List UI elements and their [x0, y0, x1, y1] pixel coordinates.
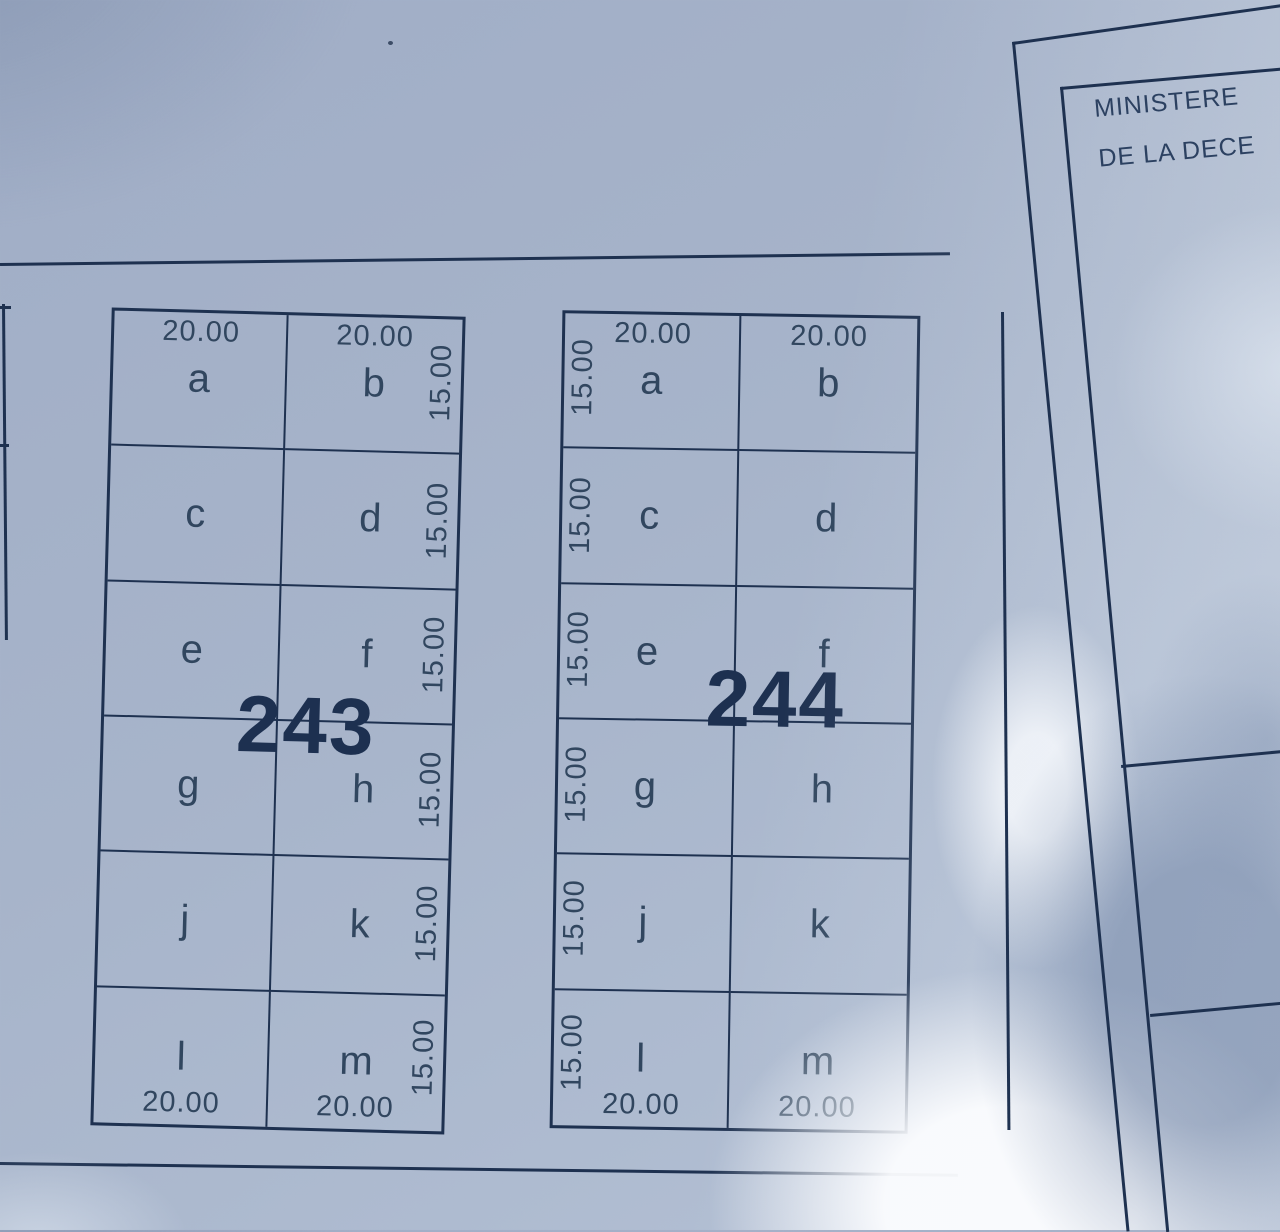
- parcel-letter: b: [817, 361, 840, 406]
- dimension-text: 15.00: [424, 343, 459, 421]
- dimension-text: 15.00: [560, 744, 594, 822]
- dimension-label-side: 15.00: [421, 315, 462, 450]
- parcel-letter: m: [339, 1039, 373, 1085]
- parcel-cell: d: [737, 451, 915, 589]
- ministry-frame-section-rule: [1150, 1001, 1280, 1016]
- parcel-letter: a: [640, 359, 663, 404]
- parcel-letter: k: [349, 902, 370, 948]
- parcel-letter: c: [639, 494, 660, 539]
- dimension-text: 15.00: [558, 878, 592, 956]
- parcel-letter: g: [177, 763, 200, 809]
- dimension-text: 15.00: [564, 476, 598, 554]
- parcel-letter: e: [180, 627, 203, 673]
- dimension-text: 15.00: [417, 615, 452, 693]
- parcel-cell: k: [731, 857, 909, 995]
- block-number: 243: [103, 680, 481, 770]
- parcel-letter: d: [359, 497, 382, 543]
- parcel-letter: d: [815, 497, 838, 542]
- parcel-letter: c: [185, 492, 206, 538]
- parcel-letter: g: [633, 765, 656, 810]
- bottom-rule-line: [0, 1162, 958, 1176]
- adjacent-block-edge-line: [2, 304, 7, 640]
- dimension-label-bottom: 20.00: [94, 1084, 269, 1122]
- dimension-label-top: 20.00: [114, 314, 289, 352]
- dimension-label-top: 20.00: [741, 319, 917, 355]
- dimension-label-side: 15.00: [561, 447, 601, 582]
- parcel-letter: k: [809, 903, 830, 948]
- dimension-text: 15.00: [566, 338, 600, 416]
- parcel-letter: h: [810, 767, 833, 812]
- dimension-label-side: 15.00: [407, 856, 448, 991]
- dimension-label-side: 15.00: [555, 850, 595, 985]
- top-rule-line: [0, 252, 950, 265]
- plan-right-margin-line: [1001, 312, 1010, 1130]
- parcel-letter: l: [176, 1034, 186, 1079]
- dimension-text: 15.00: [421, 481, 456, 559]
- ministry-frame-section-rule: [1121, 749, 1280, 767]
- parcel-letter: h: [352, 767, 375, 813]
- block-number: 244: [559, 656, 952, 742]
- parcel-block-243: a b c d e f g h j k l m 20.00 20.00 20.0…: [90, 308, 465, 1135]
- dimension-text: 15.00: [407, 1018, 442, 1096]
- dimension-text: 15.00: [556, 1012, 590, 1090]
- adjacent-block-row-stub: [0, 306, 11, 309]
- ministry-sheet-top-edge: [1012, 4, 1280, 44]
- parcel-cell: c: [108, 446, 285, 586]
- dimension-label-bottom: 20.00: [729, 1090, 905, 1126]
- paper-speck: [388, 41, 393, 45]
- parcel-cell: j: [97, 852, 274, 992]
- ministry-title: MINISTERE DE LA DECE: [1092, 70, 1257, 183]
- ministry-frame-left-border: [1060, 87, 1169, 1232]
- parcel-letter: f: [361, 632, 373, 677]
- parcel-letter: a: [187, 357, 210, 403]
- parcel-letter: b: [362, 361, 385, 407]
- dimension-text: 15.00: [410, 884, 445, 962]
- parcel-letter: l: [636, 1036, 646, 1081]
- parcel-block-244: a b c d e f g h j k l m 20.00 20.00 20.0…: [550, 310, 921, 1134]
- photo-of-cadastral-plan: a b c d e f g h j k l m 20.00 20.00 20.0…: [0, 0, 1280, 1230]
- parcel-letter: j: [180, 898, 190, 943]
- dimension-label-side: 15.00: [563, 309, 603, 444]
- dimension-label-side: 15.00: [553, 984, 593, 1119]
- parcel-letter: m: [801, 1039, 835, 1085]
- dimension-label-side: 15.00: [418, 453, 459, 588]
- dimension-label-side: 15.00: [404, 989, 445, 1124]
- parcel-letter: j: [638, 900, 648, 945]
- adjacent-block-row-stub: [0, 444, 9, 447]
